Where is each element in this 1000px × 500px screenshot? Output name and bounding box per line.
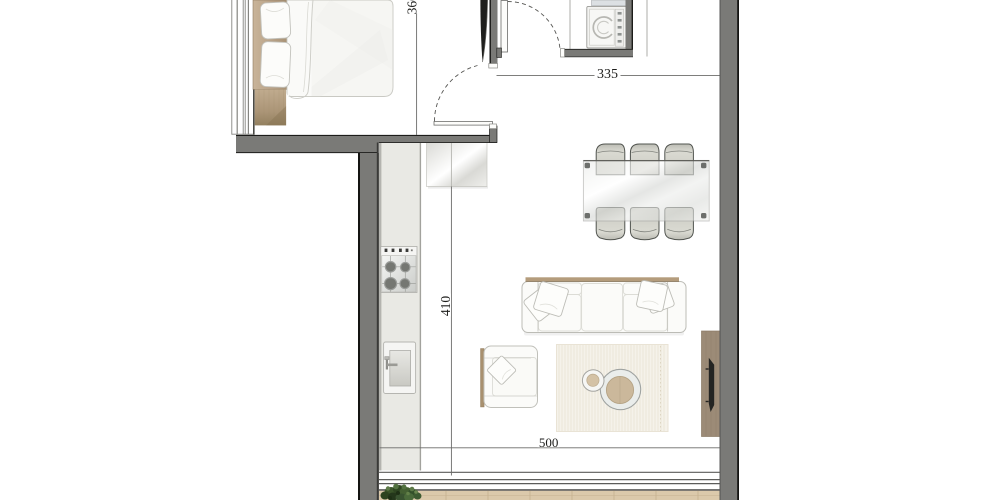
svg-text:360: 360	[404, 0, 419, 14]
svg-text:410: 410	[438, 296, 453, 317]
svg-text:335: 335	[597, 67, 618, 82]
svg-text:500: 500	[539, 435, 559, 450]
